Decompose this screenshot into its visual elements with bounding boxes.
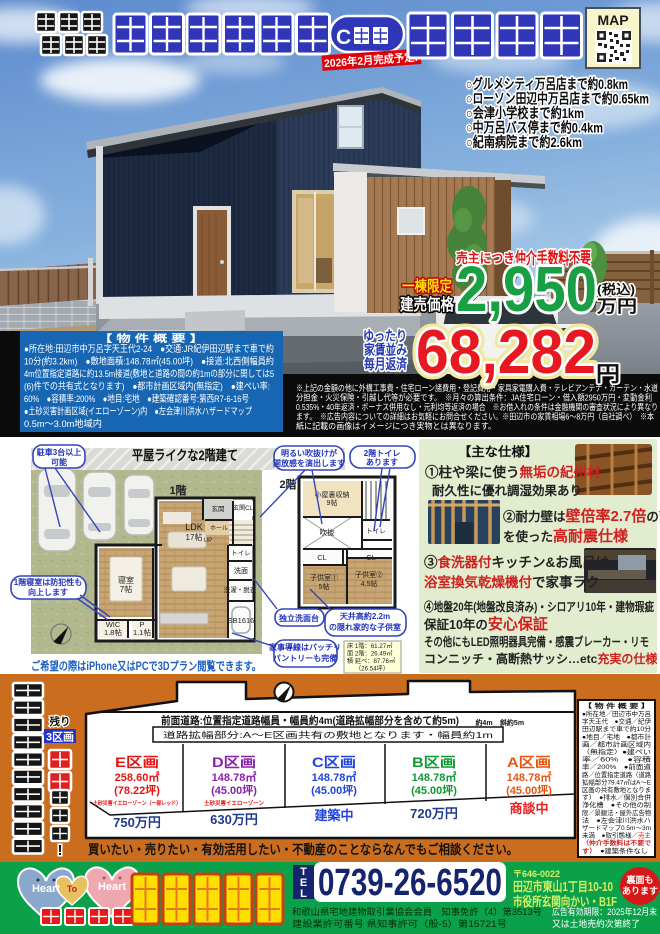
svg-text:を使った高耐震仕様: を使った高耐震仕様 [503,527,629,545]
svg-text:建築中: 建築中 [314,808,353,823]
svg-text:建設業許可番号 県知事許可（般-5）第15721号: 建設業許可番号 県知事許可（般-5）第15721号 [292,918,507,929]
svg-text:す） ●排水／個別合併: す） ●排水／個別合併 [582,793,652,802]
svg-text:浴室換気乾燥機付で家事ラク: 浴室換気乾燥機付で家事ラク [424,574,600,590]
svg-text:広告有効期限：2025年12月末: 広告有効期限：2025年12月末 [552,906,657,917]
svg-text:10分(約3.2km) ●敷地面積:148.78㎡(45.0: 10分(約3.2km) ●敷地面積:148.78㎡(45.00坪) ●接道:北西… [24,356,274,368]
svg-text:●土砂災害計画区域(イエローゾーン)内 ●左会津川洪水ハザー: ●土砂災害計画区域(イエローゾーン)内 ●左会津川洪水ハザードマップ [24,406,252,418]
svg-text:田辺駅まで車で約10分: 田辺駅まで車で約10分 [582,724,652,733]
svg-text:平屋ライクな2階建て: 平屋ライクな2階建て [132,447,238,463]
svg-text:コンニッチ・高断熱サッシ…etc充実の仕様: コンニッチ・高断熱サッシ…etc充実の仕様 [424,651,658,666]
svg-text:MAP: MAP [597,12,628,28]
svg-text:〒646-0022: 〒646-0022 [513,869,560,879]
svg-text:【 物 件 概 要 】: 【 物 件 概 要 】 [583,701,650,710]
svg-text:裏面も: 裏面も [625,874,653,885]
svg-text:率／60% ●容積: 率／60% ●容積 [582,755,652,764]
svg-text:Heart: Heart [98,881,126,893]
svg-text:家事導線はバッチリ: 家事導線はバッチリ [269,642,341,652]
svg-text:4.5帖: 4.5帖 [361,579,378,588]
svg-text:④地盤20年(地盤改良済み)・シロアリ10年・建物瑕疵: ④地盤20年(地盤改良済み)・シロアリ10年・建物瑕疵 [424,599,654,614]
svg-text:紙に記載の画像はイメージにつき実物とは異なります。: 紙に記載の画像はイメージにつき実物とは異なります。 [296,421,496,431]
svg-text:積 延べ：87.76㎡: 積 延べ：87.76㎡ [347,657,396,665]
svg-text:②耐力壁は壁倍率2.7倍の面材: ②耐力壁は壁倍率2.7倍の面材 [503,507,660,525]
svg-text:可能: 可能 [51,457,67,467]
svg-text:率／200% ●前面道: 率／200% ●前面道 [582,762,652,771]
svg-text:(45.00坪): (45.00坪) [411,784,457,797]
svg-text:SB1616: SB1616 [228,616,255,625]
svg-text:A区画: A区画 [507,755,551,770]
svg-text:2,950: 2,950 [456,253,597,325]
svg-text:パントリーも完備: パントリーも完備 [273,653,337,663]
svg-text:（26.54坪）: （26.54坪） [355,665,389,673]
svg-text:【主な仕様】: 【主な仕様】 [458,444,538,459]
svg-text:毎月返済: 毎月返済 [364,356,408,372]
svg-text:円: 円 [596,363,620,386]
svg-text:LDK: LDK [185,522,203,532]
svg-text:750万円: 750万円 [113,815,161,830]
svg-text:C区画: C区画 [312,755,356,770]
svg-text:道路拡幅部分:A〜E区画共有の敷地となります・幅員約1m: 道路拡幅部分:A〜E区画共有の敷地となります・幅員約1m [163,730,493,740]
svg-text:開放感を演出します: 開放感を演出します [273,458,345,468]
svg-text:買いたい・売りたい・有効活用したい・不動産のことならなんでも: 買いたい・売りたい・有効活用したい・不動産のことならなんでもご相談ください。 [88,842,518,857]
svg-text:前面道路:位置指定道路幅員・幅員約4m(道路拡幅部分を含めて: 前面道路:位置指定道路幅員・幅員約4m(道路拡幅部分を含めて約5m) [161,714,459,727]
svg-text:ます。 ※広告内容についての詳細はお気軽にお問合せください。: ます。 ※広告内容についての詳細はお気軽にお問合せください。※田辺市の家賃相場6… [296,412,654,422]
svg-text:田辺市東山1丁目10-10: 田辺市東山1丁目10-10 [513,879,613,894]
svg-text:路／位置指定道路（道路: 路／位置指定道路（道路 [582,770,652,779]
svg-text:①柱や梁に使う無垢の紀州材: ①柱や梁に使う無垢の紀州材 [425,464,601,480]
svg-text:1.8帖: 1.8帖 [104,627,122,637]
svg-text:1.1帖: 1.1帖 [133,627,151,637]
svg-text:148.78㎡: 148.78㎡ [412,770,457,784]
svg-text:720万円: 720万円 [410,806,458,821]
svg-text:4m位置指定道路に約13.5m接道(敷地と道路の間の約1mの: 4m位置指定道路に約13.5m接道(敷地と道路の間の約1mの部分に関しては5 [24,368,274,380]
svg-text:限／景観法・屋外広告物: 限／景観法・屋外広告物 [582,808,652,817]
svg-text:拡幅部分79.47㎡はA〜E: 拡幅部分79.47㎡はA〜E [582,777,651,786]
svg-text:(45.00坪): (45.00坪) [311,784,357,797]
svg-text:残り: 残り [50,715,71,728]
svg-text:③食洗器付キッチン&お風呂は: ③食洗器付キッチン&お風呂は [424,554,610,570]
svg-text:小屋裏収納: 小屋裏収納 [315,490,350,499]
svg-text:約4m: 約4m [475,718,492,727]
svg-text:トイレ: トイレ [231,550,251,557]
svg-text:2階: 2階 [279,477,296,491]
svg-text:分担金・火災保険・引越し代等が必要です。 ※月々の算出条件：: 分担金・火災保険・引越し代等が必要です。 ※月々の算出条件：JA住宅ローン・借入… [296,393,652,403]
svg-text:●所在地／田辺市中万呂: ●所在地／田辺市中万呂 [582,709,651,718]
svg-text:字天王代 ●交通／紀伊: 字天王代 ●交通／紀伊 [582,717,652,726]
svg-text:子供室②: 子供室② [355,570,383,579]
svg-text:向上します: 向上します [28,587,68,597]
svg-text:(6)件での共有式となります) ●都市計画区域内(無指定): (6)件での共有式となります) ●都市計画区域内(無指定) ●建ぺい率: [24,381,270,393]
svg-text:和歌山県宅地建物取引業協会会員 知事免許（4）第3513号: 和歌山県宅地建物取引業協会会員 知事免許（4）第3513号 [292,906,542,917]
svg-text:洗濯・脱衣: 洗濯・脱衣 [224,585,257,594]
svg-text:吹抜: 吹抜 [320,527,335,537]
svg-text:（無指定）●建ぺい: （無指定）●建ぺい [582,747,651,756]
svg-text:0.5m〜3.0m地域内: 0.5m〜3.0m地域内 [24,418,102,430]
svg-text:耐久性に優れ調湿効果あり: 耐久性に優れ調湿効果あり [432,483,582,498]
svg-text:の隠れ家的な子供室: の隠れ家的な子供室 [329,622,401,632]
svg-text:トイレ: トイレ [366,528,386,535]
svg-text:未満 ●取引態様／売主: 未満 ●取引態様／売主 [582,831,652,840]
svg-text:UP: UP [204,538,212,544]
svg-text:ホール: ホール [210,525,228,532]
svg-text:(45.00坪): (45.00坪) [211,784,257,797]
svg-text:7帖: 7帖 [120,584,132,594]
svg-text:0739-26-6520: 0739-26-6520 [318,862,502,904]
svg-text:万円: 万円 [596,297,637,316]
svg-text:ザードマップ0.5m〜3m: ザードマップ0.5m〜3m [582,824,651,832]
svg-text:子供室①: 子供室① [310,573,338,582]
svg-text:浄化槽 ●その他の制: 浄化槽 ●その他の制 [582,800,651,809]
svg-text:寝室: 寝室 [118,575,134,585]
svg-text:す） ●建築条件なし: す） ●建築条件なし [582,846,648,855]
svg-text:一棟限定: 一棟限定 [402,277,452,295]
svg-text:駐車3台以上: 駐車3台以上 [37,447,81,457]
svg-text:あります: あります [366,458,398,467]
svg-text:5帖: 5帖 [319,582,330,591]
svg-text:あります: あります [622,886,658,896]
svg-text:独立洗面台: 独立洗面台 [278,613,319,623]
svg-text:土砂災害イエローゾーン: 土砂災害イエローゾーン [204,799,264,807]
svg-text:17帖: 17帖 [186,532,203,542]
svg-text:!: ! [58,842,63,859]
svg-text:148.78㎡: 148.78㎡ [507,770,552,784]
svg-text:土砂災害イエローゾーン（一部レッド）: 土砂災害イエローゾーン（一部レッド） [93,799,181,807]
svg-text:(45.00坪): (45.00坪) [506,784,552,797]
svg-text:ご希望の際はiPhone又はPCで3Dプラン閲覧できます。: ご希望の際はiPhone又はPCで3Dプラン閲覧できます。 [31,659,261,673]
svg-text:1階: 1階 [169,483,186,497]
svg-text:洗面: 洗面 [234,566,248,575]
svg-text:258.60㎡: 258.60㎡ [115,770,160,784]
svg-text:法 ●左会津川洪水ハ: 法 ●左会津川洪水ハ [582,815,651,824]
svg-text:(税込): (税込) [597,282,635,297]
svg-text:（仲介手数料は不要で: （仲介手数料は不要で [582,838,652,847]
svg-text:(78.22坪): (78.22坪) [114,784,160,797]
svg-text:保証10年の安心保証: 保証10年の安心保証 [423,615,548,633]
svg-text:又は土地売約次第終了: 又は土地売約次第終了 [552,918,640,929]
svg-text:○紀南病院まで約2.6km: ○紀南病院まで約2.6km [466,134,582,150]
svg-text:B区画: B区画 [412,755,456,770]
svg-text:斜約5m: 斜約5m [499,718,524,727]
svg-text:D区画: D区画 [212,755,256,770]
svg-text:商談中: 商談中 [509,801,548,816]
svg-text:C: C [336,26,351,49]
svg-text:玄関: 玄関 [212,504,225,513]
svg-text:玄関CL: 玄関CL [233,504,253,512]
svg-text:面 2階：26.49㎡: 面 2階：26.49㎡ [347,650,393,658]
svg-text:Heart: Heart [32,883,60,895]
svg-text:その他にもLED照明器具完備・感震ブレーカー・リモ: その他にもLED照明器具完備・感震ブレーカー・リモ [424,634,649,649]
svg-text:天井高約2.2m: 天井高約2.2m [340,611,390,621]
svg-text:0.535%・40年返済・ボーナス併用なし・元利均等返済の場: 0.535%・40年返済・ボーナス併用なし・元利均等返済の場合 ※お借入れの条件… [296,402,658,412]
svg-text:E区画: E区画 [115,755,159,770]
svg-text:148.78㎡: 148.78㎡ [312,770,357,784]
svg-text:建売価格: 建売価格 [400,295,455,314]
svg-text:CL: CL [366,553,376,562]
svg-text:1階寝室は防犯性も: 1階寝室は防犯性も [14,577,82,587]
svg-text:L: L [300,888,307,900]
svg-text:CL: CL [317,553,327,562]
svg-text:●所在地:田辺市中万呂字天王代2-24 ●交通:JR紀伊田辺: ●所在地:田辺市中万呂字天王代2-24 ●交通:JR紀伊田辺駅まで車で約 [24,343,274,355]
svg-text:明るい吹抜けが: 明るい吹抜けが [281,448,338,458]
svg-text:60% ●容積率:200% ●地目:宅地 ●建築確認番号:第: 60% ●容積率:200% ●地目:宅地 ●建築確認番号:第西R7-6-16号 [24,393,249,405]
svg-text:To: To [67,884,78,894]
svg-text:148.78㎡: 148.78㎡ [212,770,257,784]
svg-text:●地目／宅地 ●都市計: ●地目／宅地 ●都市計 [582,732,652,741]
svg-text:画／都市計画区域内: 画／都市計画区域内 [582,739,651,748]
svg-text:区画の共有敷地となりま: 区画の共有敷地となりま [582,785,651,794]
svg-text:68,282: 68,282 [416,318,596,387]
svg-text:630万円: 630万円 [210,812,258,827]
svg-text:床 1階：61.27㎡: 床 1階：61.27㎡ [347,642,393,650]
svg-text:9帖: 9帖 [327,498,338,507]
svg-text:2階トイレ: 2階トイレ [364,448,400,458]
svg-text:3区画: 3区画 [46,731,74,744]
